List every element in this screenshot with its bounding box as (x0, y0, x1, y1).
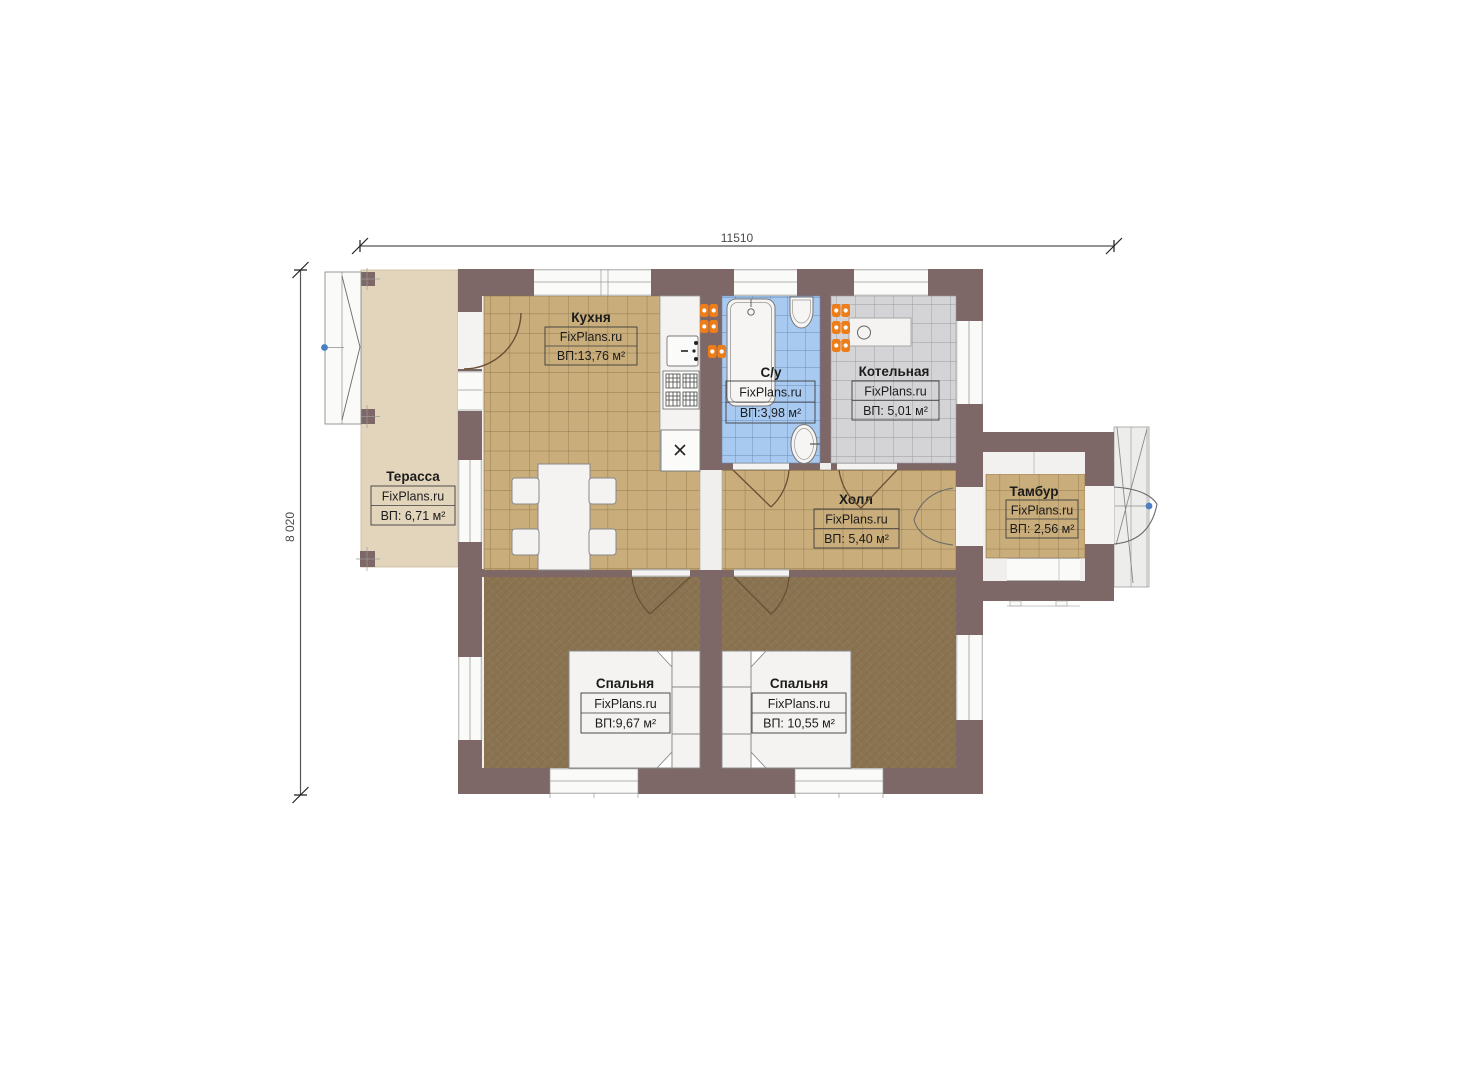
svg-text:ВП:13,76 м²: ВП:13,76 м² (557, 349, 625, 363)
svg-text:С/у: С/у (760, 365, 782, 380)
svg-text:FixPlans.ru: FixPlans.ru (739, 386, 802, 400)
svg-text:Котельная: Котельная (859, 364, 930, 379)
svg-text:FixPlans.ru: FixPlans.ru (594, 697, 657, 711)
svg-text:ВП: 10,55 м²: ВП: 10,55 м² (763, 717, 835, 731)
svg-text:ВП:9,67 м²: ВП:9,67 м² (595, 717, 656, 731)
svg-text:ВП: 5,40 м²: ВП: 5,40 м² (824, 532, 889, 546)
svg-text:FixPlans.ru: FixPlans.ru (1011, 504, 1074, 518)
svg-text:ВП: 2,56 м²: ВП: 2,56 м² (1010, 522, 1075, 536)
svg-text:FixPlans.ru: FixPlans.ru (864, 385, 927, 399)
svg-text:FixPlans.ru: FixPlans.ru (382, 490, 445, 504)
svg-text:Спальня: Спальня (770, 676, 828, 691)
svg-text:FixPlans.ru: FixPlans.ru (825, 513, 888, 527)
svg-text:8 020: 8 020 (283, 512, 297, 542)
svg-text:Терасса: Терасса (386, 469, 440, 484)
svg-text:ВП: 5,01 м²: ВП: 5,01 м² (863, 404, 928, 418)
svg-text:Кухня: Кухня (571, 310, 610, 325)
svg-text:Тамбур: Тамбур (1010, 484, 1059, 499)
svg-text:11510: 11510 (721, 231, 754, 245)
svg-text:FixPlans.ru: FixPlans.ru (560, 330, 623, 344)
svg-text:ВП:3,98 м²: ВП:3,98 м² (740, 406, 801, 420)
svg-text:Спальня: Спальня (596, 676, 654, 691)
svg-text:FixPlans.ru: FixPlans.ru (768, 697, 831, 711)
svg-text:Холл: Холл (839, 492, 873, 507)
svg-text:ВП: 6,71 м²: ВП: 6,71 м² (381, 509, 446, 523)
